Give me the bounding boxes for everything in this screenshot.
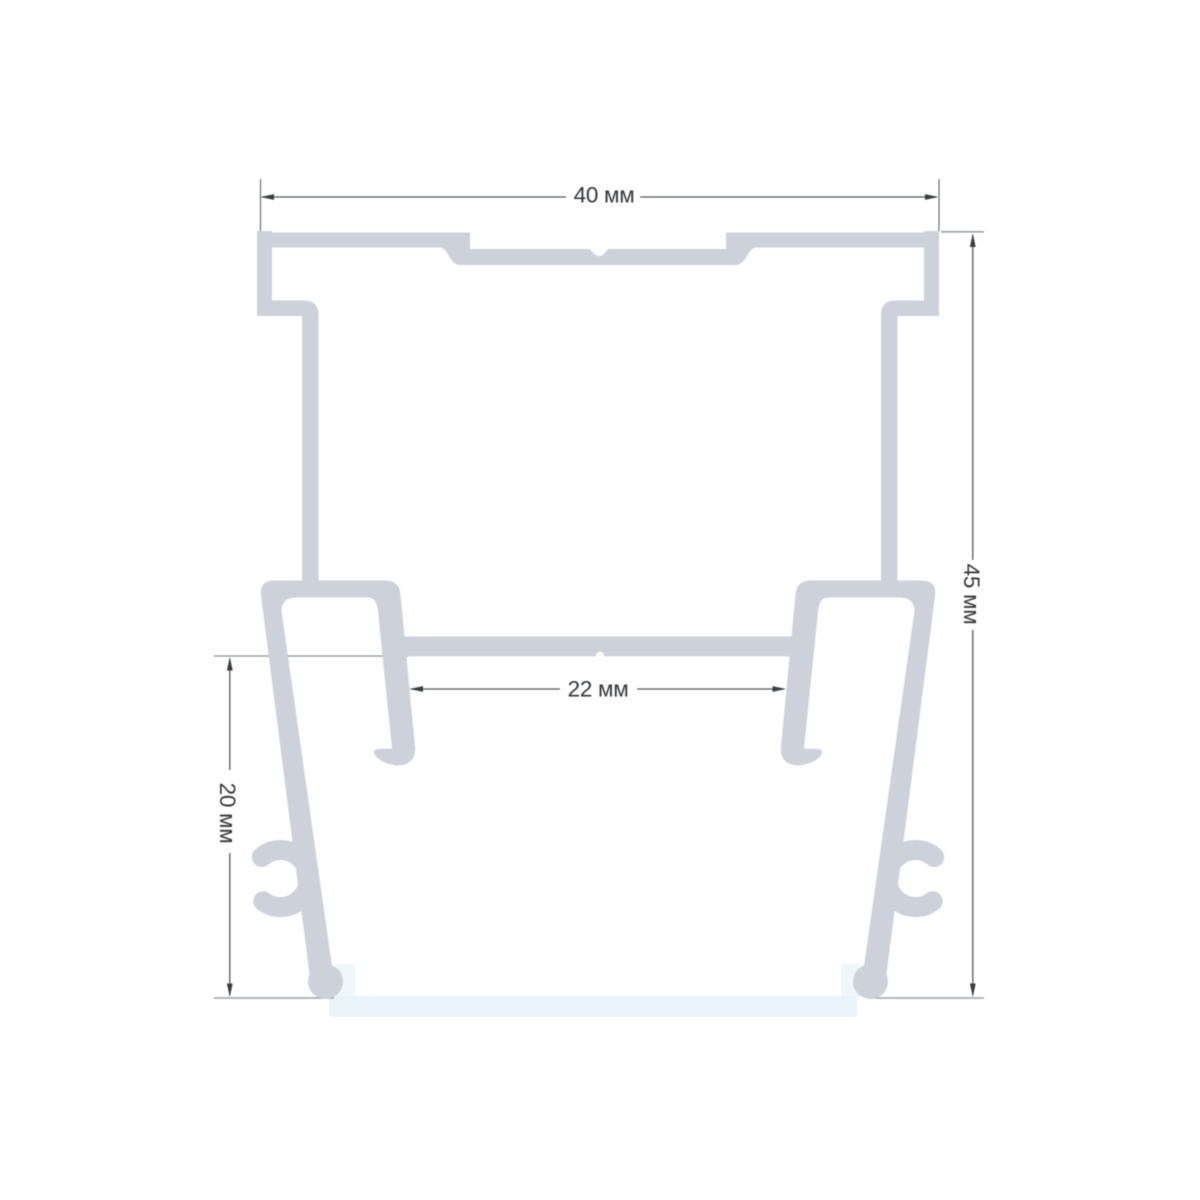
svg-text:22 мм: 22 мм: [568, 677, 629, 702]
svg-text:45 мм: 45 мм: [959, 564, 984, 625]
svg-text:20 мм: 20 мм: [215, 783, 240, 844]
svg-text:40 мм: 40 мм: [574, 183, 635, 208]
